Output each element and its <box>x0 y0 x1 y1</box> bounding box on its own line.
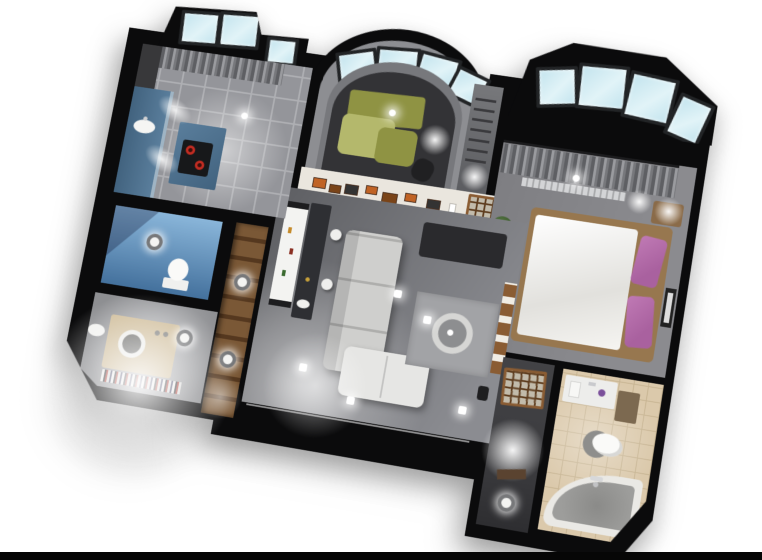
bed-pillow <box>624 296 655 349</box>
bath-cabinet <box>614 390 640 424</box>
waste-bin <box>476 385 489 401</box>
ceiling-spotlight <box>458 406 467 415</box>
cup <box>447 329 454 336</box>
kitchen-floor <box>114 44 313 219</box>
art-frame <box>404 193 418 203</box>
floorplan-render-stage <box>0 0 762 560</box>
bed <box>510 207 673 363</box>
credenza-cap <box>286 201 309 210</box>
window-pane <box>536 66 579 108</box>
charcoal-daybed <box>418 222 507 269</box>
ceiling-ring-light <box>233 273 252 292</box>
ceiling-spotlight <box>393 289 402 298</box>
picture-inner <box>663 293 673 324</box>
cushion-seam <box>379 356 388 398</box>
soap-dispenser <box>598 389 606 397</box>
floor-light-pool <box>254 325 376 447</box>
cooktop <box>177 139 213 177</box>
kitchen-sink <box>132 118 156 134</box>
bar-item <box>305 277 310 282</box>
shoji-screen <box>500 367 547 409</box>
burner <box>194 160 205 171</box>
ceiling-light <box>241 112 249 120</box>
ceiling-ring-light <box>496 493 516 513</box>
plate <box>296 299 310 310</box>
rug <box>405 291 500 377</box>
bottle <box>289 248 293 254</box>
window-pane <box>216 11 262 50</box>
faucet <box>588 382 596 387</box>
window-pane <box>178 10 222 47</box>
vanity-unit <box>562 374 618 409</box>
art-frame <box>312 177 327 189</box>
light-bloom-overlay <box>30 280 248 489</box>
bottle <box>288 227 292 233</box>
olive-sofa-chaise <box>373 126 419 167</box>
art-frame <box>344 184 359 196</box>
shoji-screen-panel <box>503 370 544 406</box>
apartment-3d-floorplan <box>34 4 720 560</box>
bed-duvet <box>516 214 638 350</box>
nightstand-lamp-glow <box>652 196 685 228</box>
bar-stool <box>329 228 342 241</box>
image-bottom-border <box>0 552 762 560</box>
lamp-glow <box>458 161 490 192</box>
wall-lamp-glow <box>625 188 654 216</box>
living-room-floor <box>242 186 528 444</box>
bottle <box>281 270 286 277</box>
round-table <box>429 310 476 357</box>
burner <box>185 145 196 156</box>
bar-stool <box>320 278 333 291</box>
lamp-glow <box>417 122 453 157</box>
ceiling-ring-light <box>145 233 164 252</box>
credenza-cap <box>268 298 291 308</box>
ceiling-spotlight <box>423 315 432 324</box>
towel <box>568 381 581 399</box>
leaning-panel <box>497 469 526 479</box>
art-frame <box>365 185 378 195</box>
